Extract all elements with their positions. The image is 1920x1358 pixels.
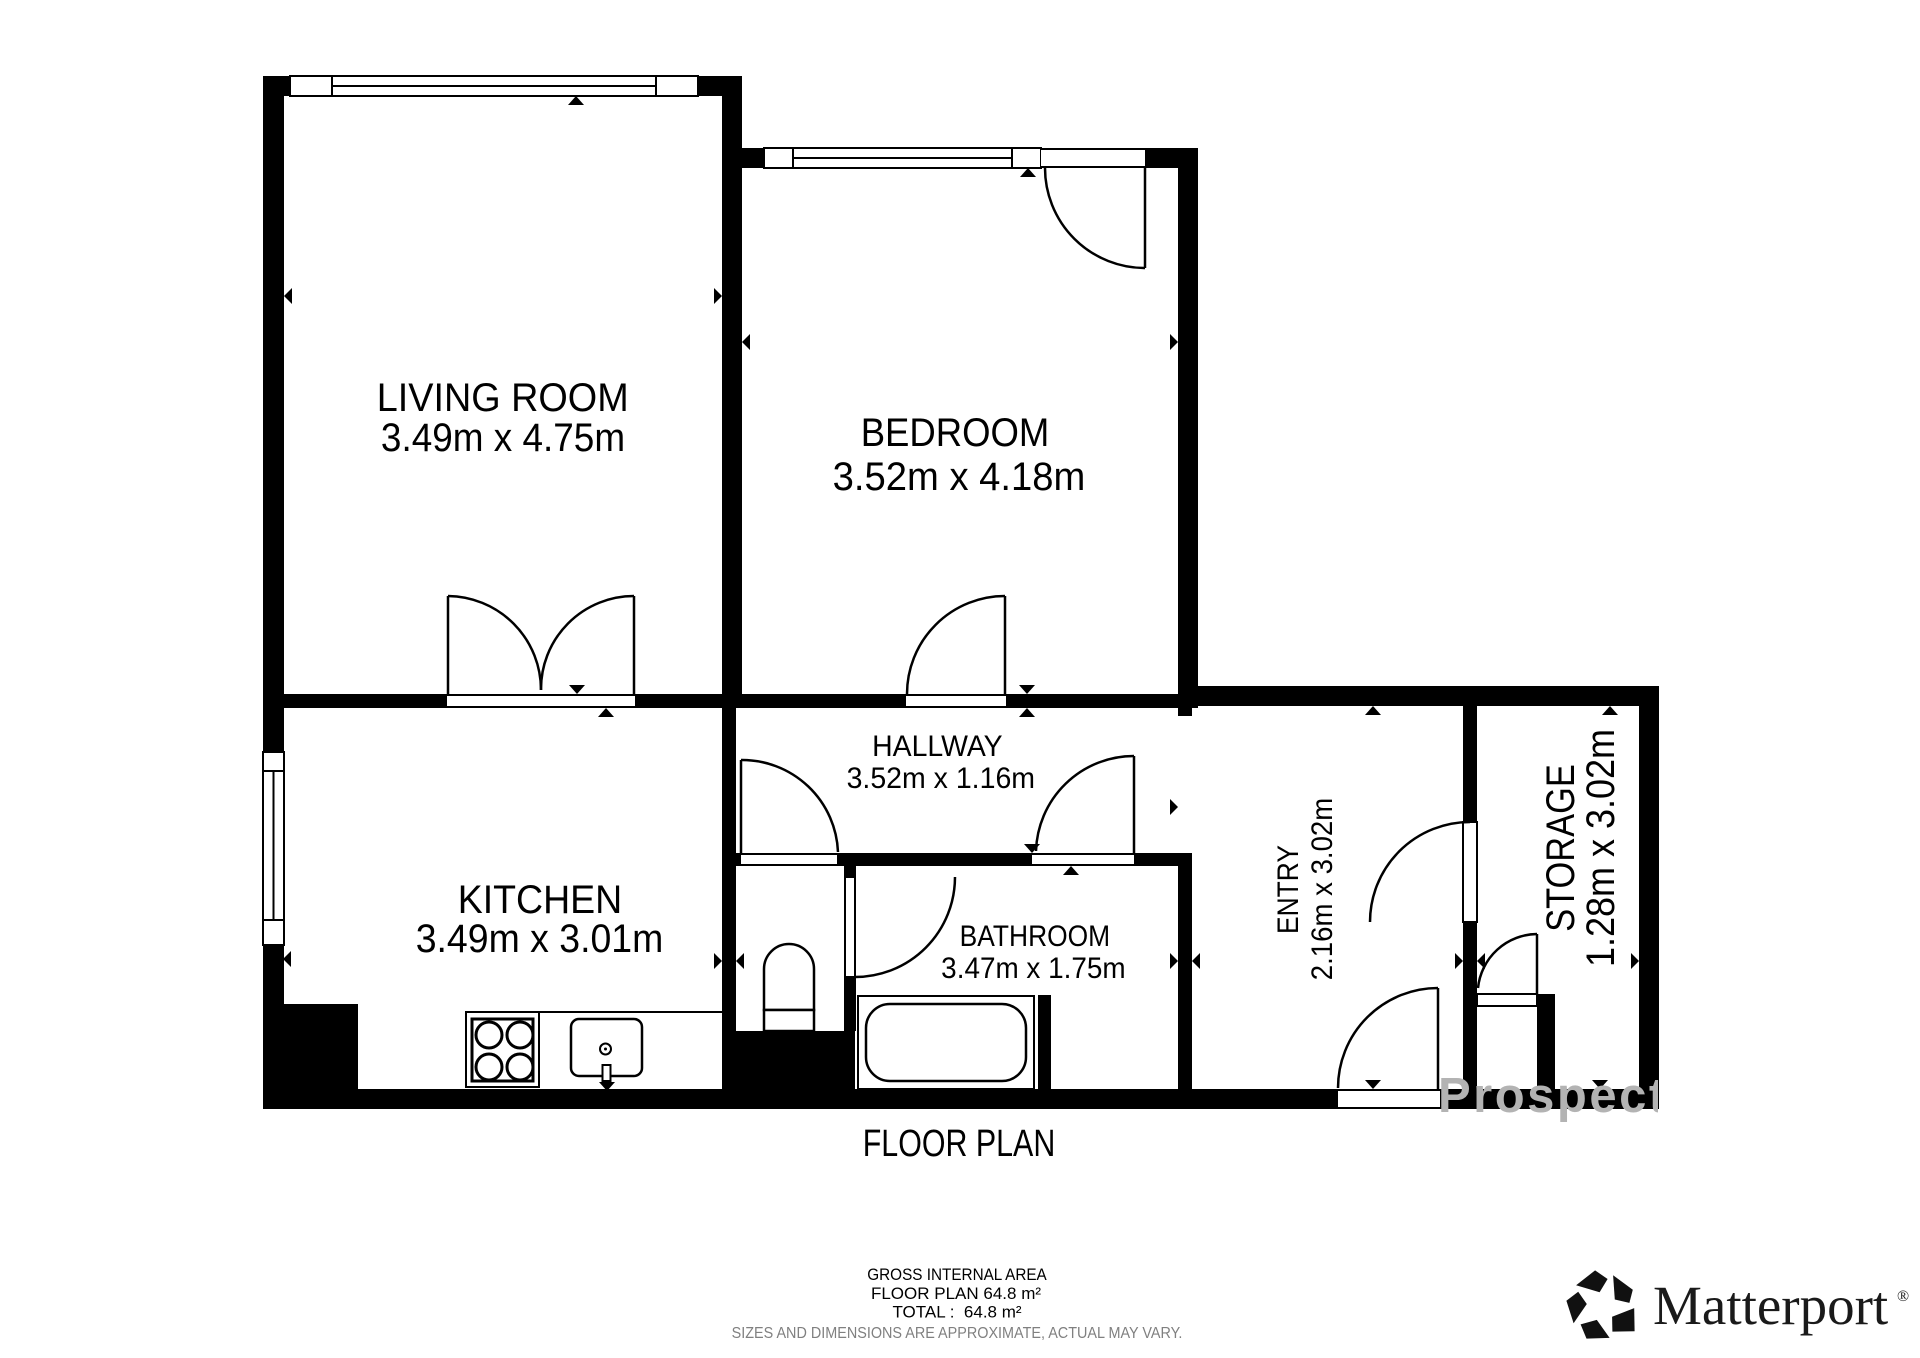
svg-text:3.52m x 4.18m: 3.52m x 4.18m xyxy=(833,455,1086,499)
svg-text:Matterport: Matterport xyxy=(1653,1275,1888,1336)
svg-text:Prospect: Prospect xyxy=(1438,1069,1668,1123)
svg-text:KITCHEN: KITCHEN xyxy=(458,878,622,922)
svg-text:3.47m x 1.75m: 3.47m x 1.75m xyxy=(941,952,1125,985)
svg-text:ENTRY: ENTRY xyxy=(1270,845,1304,934)
svg-text:LIVING ROOM: LIVING ROOM xyxy=(377,376,629,420)
svg-text:3.52m x 1.16m: 3.52m x 1.16m xyxy=(847,762,1035,795)
svg-text:GROSS INTERNAL AREA: GROSS INTERNAL AREA xyxy=(867,1265,1047,1284)
svg-text:FLOOR PLAN 64.8 m²: FLOOR PLAN 64.8 m² xyxy=(871,1284,1041,1303)
svg-text:BEDROOM: BEDROOM xyxy=(861,410,1050,455)
svg-text:FLOOR PLAN: FLOOR PLAN xyxy=(863,1123,1056,1165)
svg-text:3.49m x 3.01m: 3.49m x 3.01m xyxy=(416,917,664,961)
svg-text:SIZES AND DIMENSIONS ARE APPRO: SIZES AND DIMENSIONS ARE APPROXIMATE, AC… xyxy=(732,1324,1183,1342)
svg-text:TOTAL : 64.8 m²: TOTAL : 64.8 m² xyxy=(892,1303,1021,1322)
svg-text:2.16m x 3.02m: 2.16m x 3.02m xyxy=(1306,798,1339,980)
svg-text:®: ® xyxy=(1897,1288,1909,1305)
svg-text:HALLWAY: HALLWAY xyxy=(872,730,1002,763)
svg-text:3.49m x 4.75m: 3.49m x 4.75m xyxy=(381,416,625,461)
svg-text:BATHROOM: BATHROOM xyxy=(960,918,1111,952)
svg-text:STORAGE: STORAGE xyxy=(1538,764,1583,932)
svg-text:1.28m x 3.02m: 1.28m x 3.02m xyxy=(1579,729,1623,967)
